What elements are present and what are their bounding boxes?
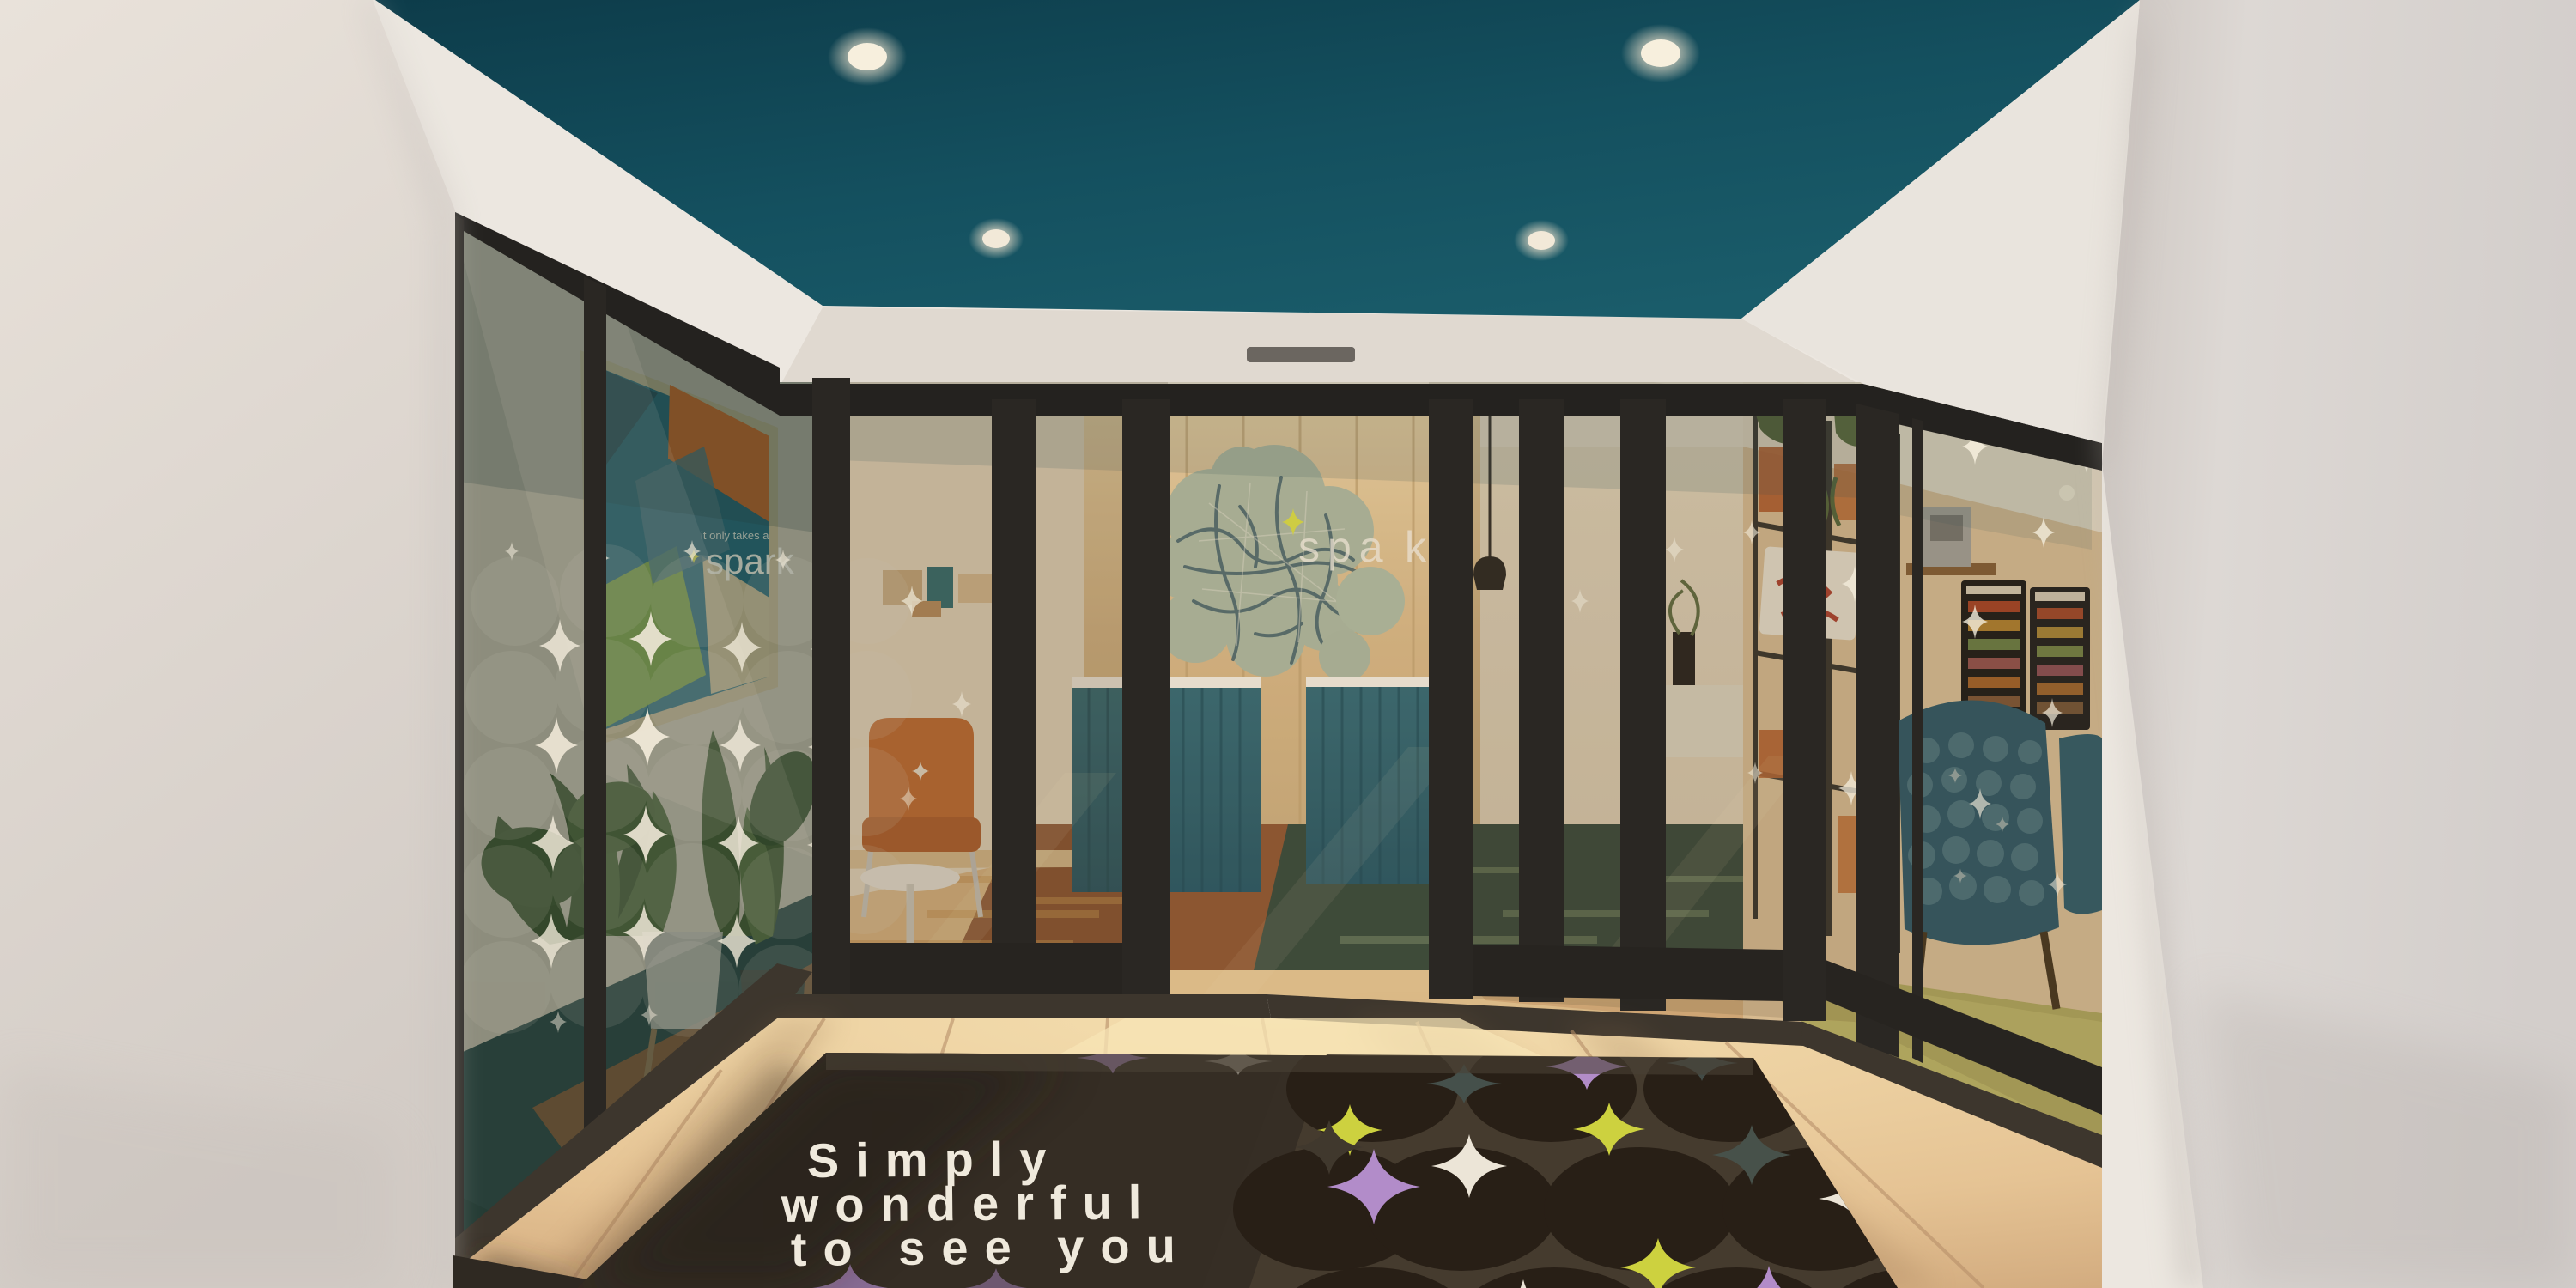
svg-text:to see you: to see you [791,1218,1193,1276]
